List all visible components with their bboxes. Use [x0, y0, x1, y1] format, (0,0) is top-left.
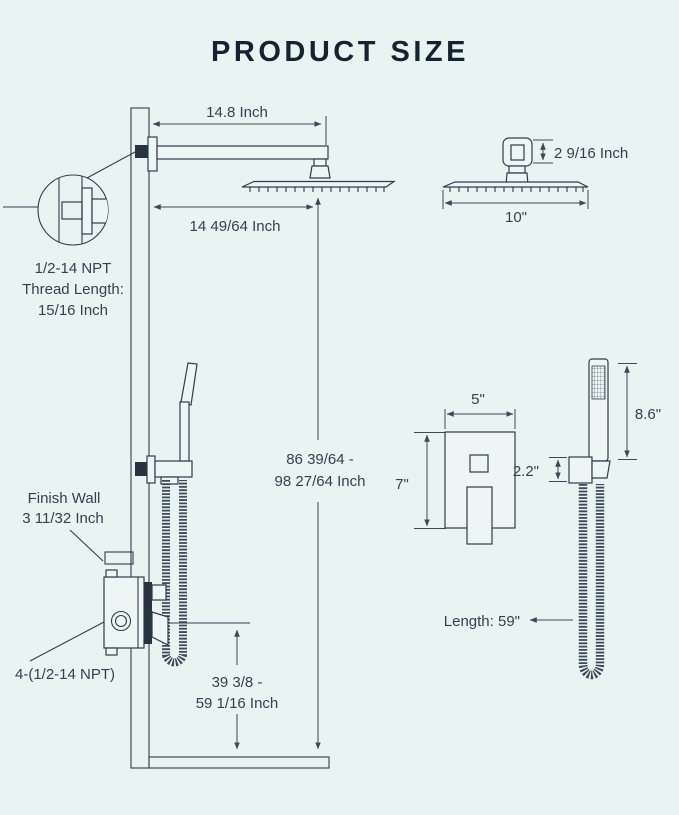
dim-handheld-height: 39 3/8 - 59 1/16 Inch — [196, 630, 279, 749]
handle-front — [467, 487, 492, 544]
head-side-view: 2 9/16 Inch 10" — [443, 138, 628, 226]
trim-plate-side — [144, 582, 152, 644]
head-plate-side — [443, 182, 588, 187]
finish-wall-line2: 3 11/32 Inch — [22, 510, 103, 527]
overall-height-line1: 86 39/64 - — [286, 451, 354, 468]
wand-head — [181, 363, 197, 405]
trim-width-label: 5" — [471, 391, 485, 408]
ball-joint-cone — [310, 166, 330, 178]
dim-head-depth: 2 9/16 Inch — [533, 140, 628, 163]
dim-overall-height: 86 39/64 - 98 27/64 Inch — [275, 198, 366, 749]
shower-head-plan — [242, 182, 394, 193]
valve-ports-callout: 4-(1/2-14 NPT) — [15, 622, 115, 683]
product-size-diagram: PRODUCT SIZE 14.8 Inch 14 49/64 Inch — [0, 0, 679, 815]
hose-right — [583, 484, 600, 675]
handheld-holder-arm — [592, 461, 610, 478]
dim-head-offset: 14 49/64 Inch — [154, 207, 313, 235]
wall-section — [131, 108, 149, 768]
holder-height-label: 2.2" — [513, 463, 539, 480]
finish-wall-line1: Finish Wall — [28, 490, 101, 507]
diverter-button-side — [152, 585, 166, 600]
valve-side-view — [104, 570, 250, 655]
arm-bar — [157, 146, 328, 159]
handheld-height-line1: 39 3/8 - — [212, 674, 263, 691]
head-width-label: 10" — [505, 209, 527, 226]
hose-length-label: Length: 59" — [444, 613, 520, 630]
wand-spray-face — [592, 366, 605, 399]
thread-spec-line3: 15/16 Inch — [38, 302, 108, 319]
dim-head-width: 10" — [443, 190, 588, 226]
hose-length-callout: Length: 59" — [444, 613, 573, 630]
finish-wall-callout: Finish Wall 3 11/32 Inch — [22, 490, 103, 561]
dim-arm-length: 14.8 Inch — [153, 104, 326, 145]
trim-height-label: 7" — [395, 476, 409, 493]
head-offset-label: 14 49/64 Inch — [190, 218, 281, 235]
head-side-nozzles — [450, 187, 583, 192]
overall-height-line2: 98 27/64 Inch — [275, 473, 366, 490]
page-title: PRODUCT SIZE — [211, 36, 469, 68]
dim-trim-width: 5" — [445, 391, 515, 429]
arm-flange — [148, 137, 157, 171]
valve-front-view: 5" 7" — [395, 391, 515, 544]
thread-spec-line1: 1/2-14 NPT — [35, 260, 112, 277]
diverter-button-front — [470, 455, 488, 472]
arm-length-label: 14.8 Inch — [206, 104, 268, 121]
handheld-height-line2: 59 1/16 Inch — [196, 695, 279, 712]
thread-detail-circle: 1/2-14 NPT Thread Length: 15/16 Inch — [3, 152, 135, 319]
thread-spec-line2: Thread Length: — [22, 281, 124, 298]
handle-side — [152, 612, 168, 645]
head-mount-inner — [511, 145, 524, 160]
wand-length-label: 8.6" — [635, 406, 661, 423]
thread-detail-content — [59, 170, 112, 250]
dim-holder-height: 2.2" — [513, 458, 567, 482]
head-nozzles — [250, 187, 384, 192]
floor-section — [149, 757, 329, 768]
dim-trim-height: 7" — [395, 433, 446, 529]
arm-wall-thread — [135, 145, 148, 158]
diagram-canvas: PRODUCT SIZE 14.8 Inch 14 49/64 Inch — [0, 0, 679, 815]
detail-leader-line — [87, 152, 135, 178]
valve-ports-label: 4-(1/2-14 NPT) — [15, 666, 115, 683]
holder-escutcheon — [147, 456, 155, 483]
dim-wand-length: 8.6" — [618, 364, 661, 460]
handheld-holder-plate — [569, 457, 592, 483]
wand-handle — [180, 402, 189, 461]
head-depth-label: 2 9/16 Inch — [554, 145, 628, 162]
shower-arm — [135, 137, 330, 178]
finish-wall-section — [105, 552, 133, 564]
holder-bracket — [155, 461, 192, 477]
holder-wall-thread — [135, 462, 147, 476]
ball-joint-neck — [314, 159, 326, 166]
